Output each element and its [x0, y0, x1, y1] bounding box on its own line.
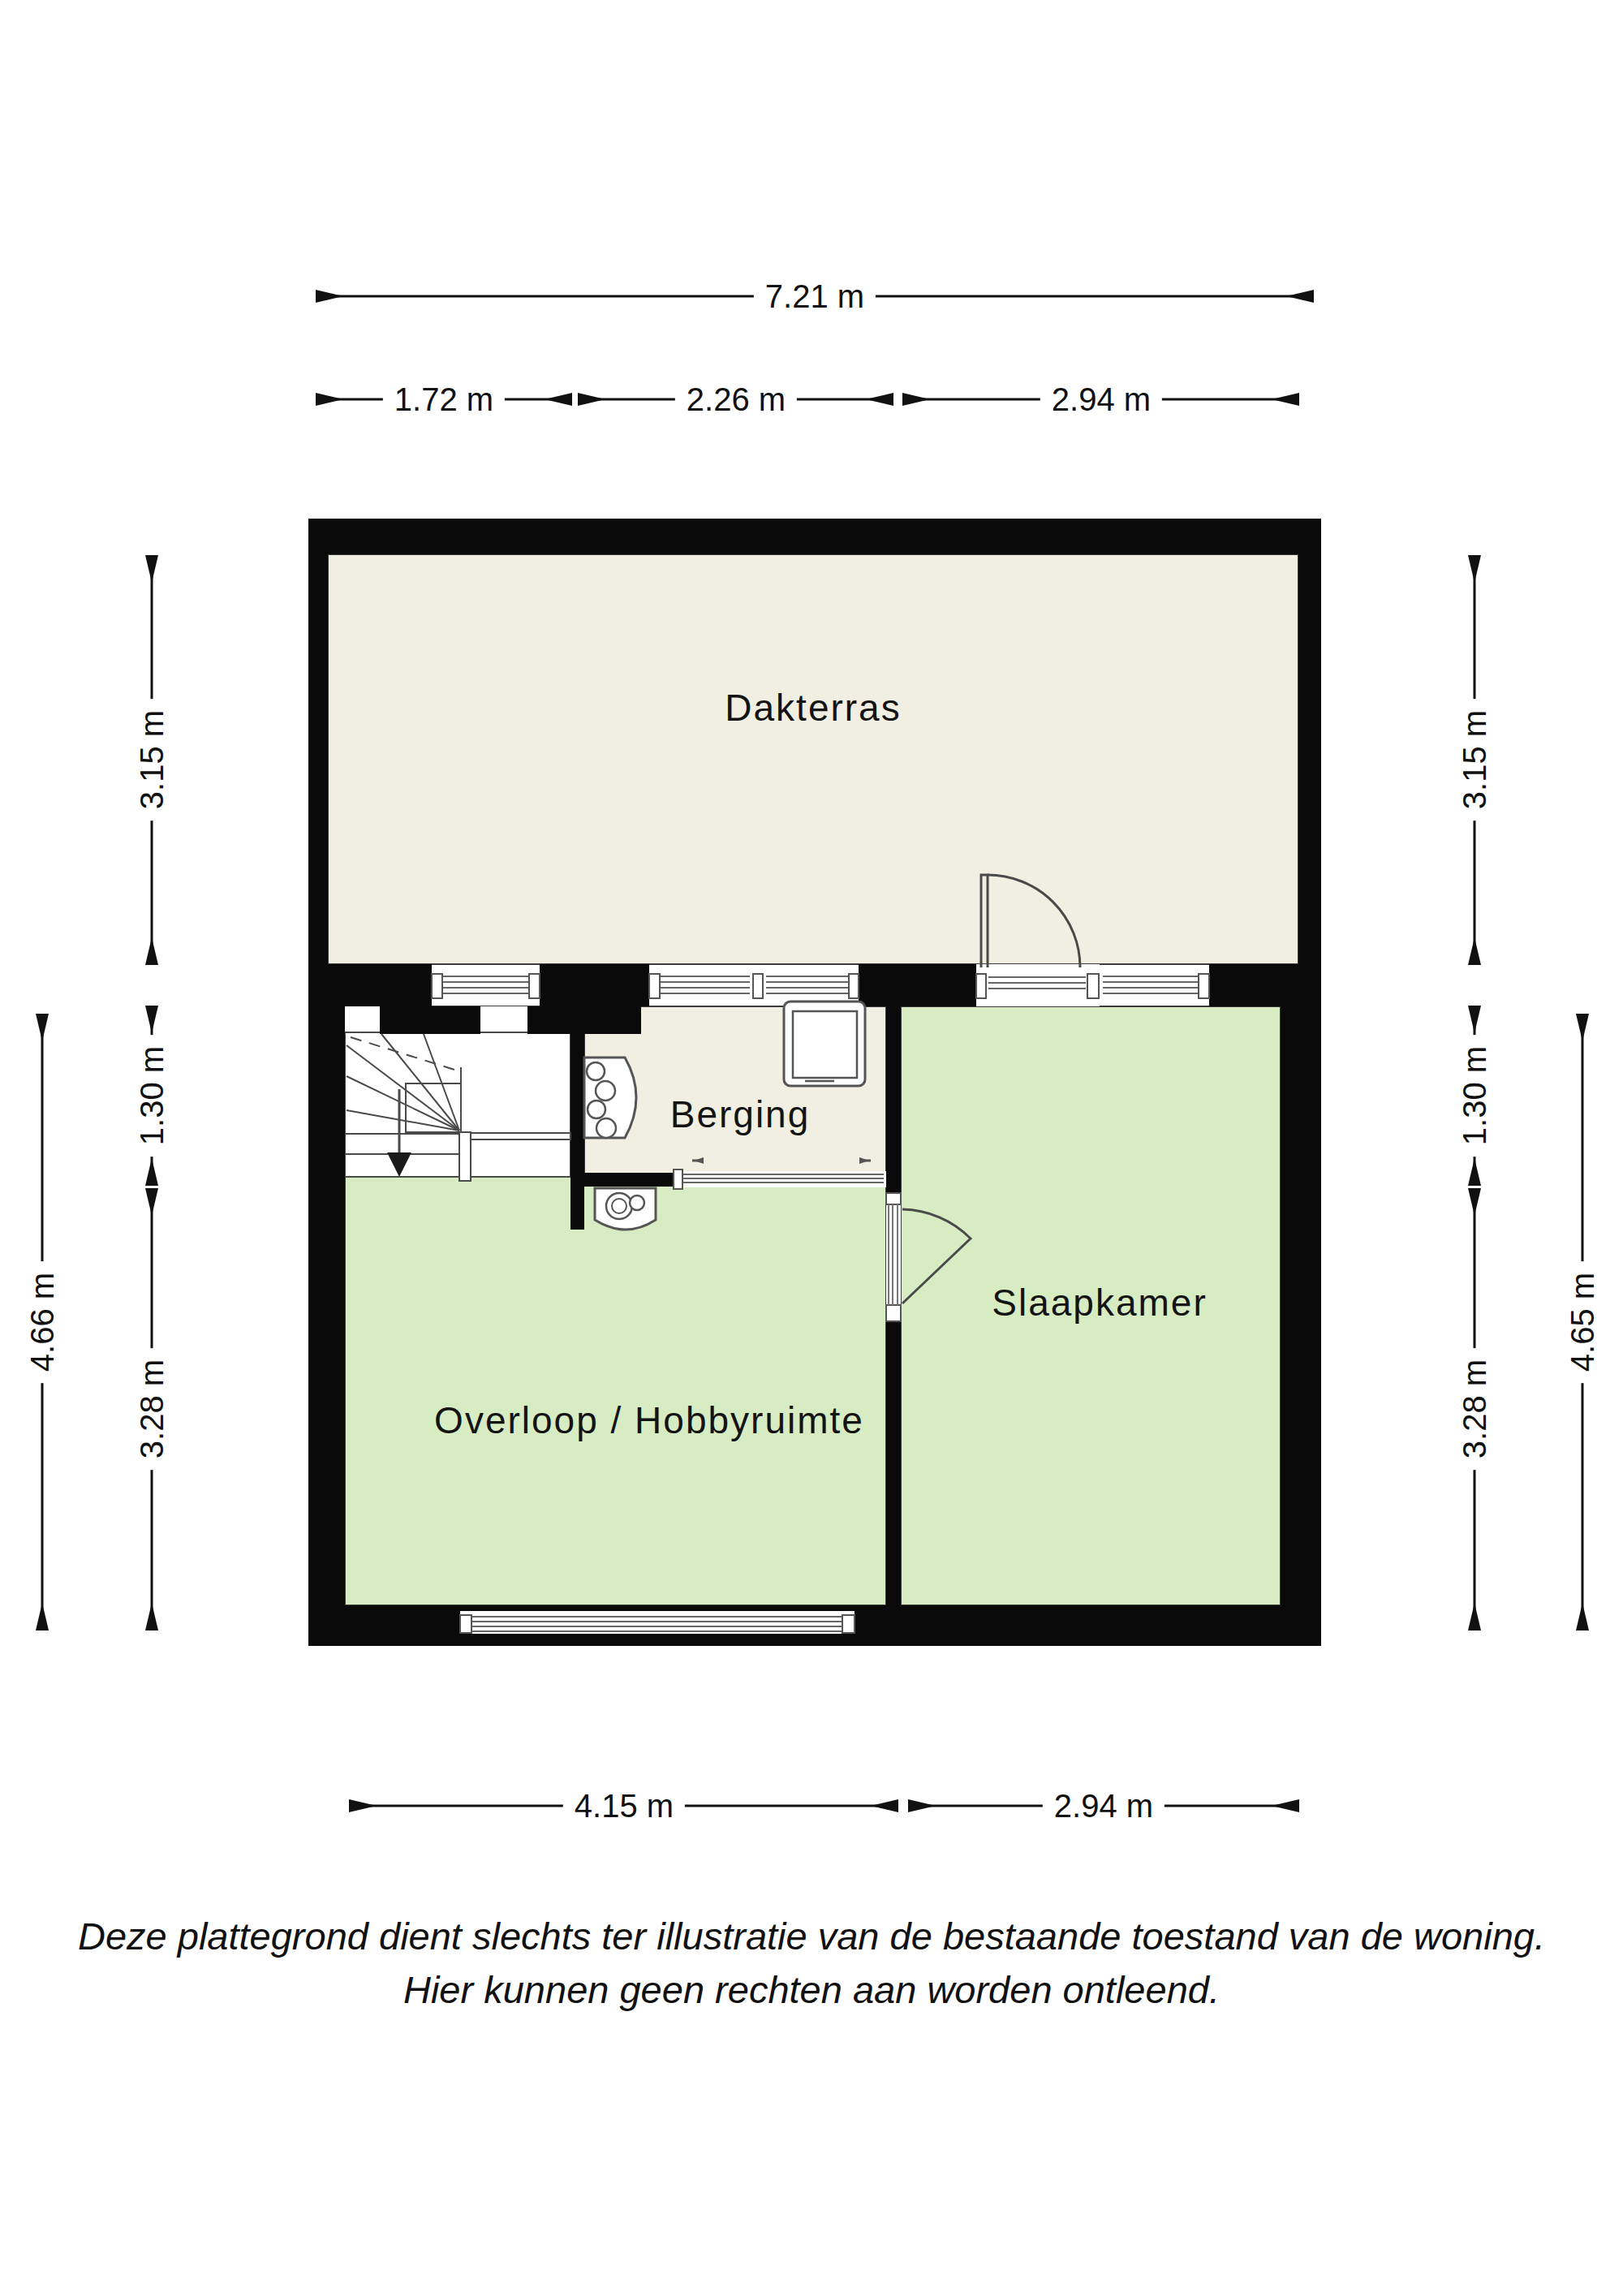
dim-label-bottom-2: 2.94 m — [1043, 1786, 1165, 1826]
sink-unit-icon — [595, 1188, 656, 1230]
washing-machine-icon — [784, 1002, 865, 1086]
wall-top — [308, 519, 1321, 554]
dim-label-top-total: 7.21 m — [754, 277, 876, 317]
window-terrace-3 — [753, 967, 859, 1003]
wall-left-lower — [308, 1006, 345, 1646]
room-label-berging: Berging — [670, 1092, 811, 1136]
dim-label-right-terrace: 3.15 m — [1455, 699, 1495, 821]
dim-label-right-total: 4.65 m — [1563, 1261, 1603, 1383]
dim-label-bottom-1: 4.15 m — [563, 1786, 685, 1826]
wall-right-terrace — [1298, 519, 1321, 1006]
band-pier-4 — [1209, 964, 1298, 1006]
door-jamb-top — [886, 1193, 901, 1204]
room-label-slaapkamer: Slaapkamer — [992, 1281, 1207, 1325]
stair-rail-end — [459, 1132, 471, 1181]
berging-window — [674, 1170, 886, 1189]
band-ext-1 — [380, 1006, 480, 1034]
stairwell-floor — [345, 1032, 570, 1177]
dim-label-top-2: 2.26 m — [675, 380, 797, 420]
band-pier-3 — [859, 964, 976, 1006]
dim-label-top-3: 2.94 m — [1040, 380, 1162, 420]
stair-low-wall — [471, 1133, 570, 1139]
floor-plan-page: 7.21 m 1.72 m 2.26 m 2.94 m 4.15 m 2.94 … — [0, 0, 1623, 2296]
door-jamb-bottom — [886, 1305, 901, 1321]
dakterras-floor — [328, 554, 1298, 964]
window-terrace-2 — [649, 967, 753, 1003]
dim-label-left-middle: 1.30 m — [132, 1035, 172, 1157]
wall-stairs-berging — [570, 1006, 584, 1230]
band-pier-2 — [540, 964, 649, 1006]
window-terrace-4 — [1100, 967, 1209, 1003]
dim-label-right-middle: 1.30 m — [1455, 1035, 1495, 1157]
wall-berging-stub — [570, 1173, 674, 1187]
dim-label-top-1: 1.72 m — [383, 380, 505, 420]
wall-slaapkamer-upper — [886, 1006, 901, 1193]
disclaimer-line-2: Hier kunnen geen rechten aan worden ontl… — [0, 1967, 1623, 2012]
band-pier-1 — [328, 964, 432, 1006]
boiler-icon — [584, 1058, 636, 1138]
terrace-door-opening — [976, 964, 1100, 1006]
dim-label-left-terrace: 3.15 m — [132, 699, 172, 821]
window-terrace-1 — [432, 967, 540, 1003]
dim-label-left-total: 4.66 m — [23, 1261, 62, 1383]
overloop-window — [460, 1611, 855, 1634]
dim-label-left-lower: 3.28 m — [132, 1348, 172, 1470]
wall-slaapkamer-lower — [886, 1321, 901, 1605]
disclaimer-line-1: Deze plattegrond dient slechts ter illus… — [0, 1914, 1623, 1958]
room-label-overloop: Overloop / Hobbyruimte — [434, 1398, 864, 1442]
wall-left-terrace — [308, 519, 328, 1006]
dim-label-right-lower: 3.28 m — [1455, 1348, 1495, 1470]
wall-right-lower — [1281, 1006, 1321, 1646]
room-label-dakterras: Dakterras — [725, 686, 901, 730]
